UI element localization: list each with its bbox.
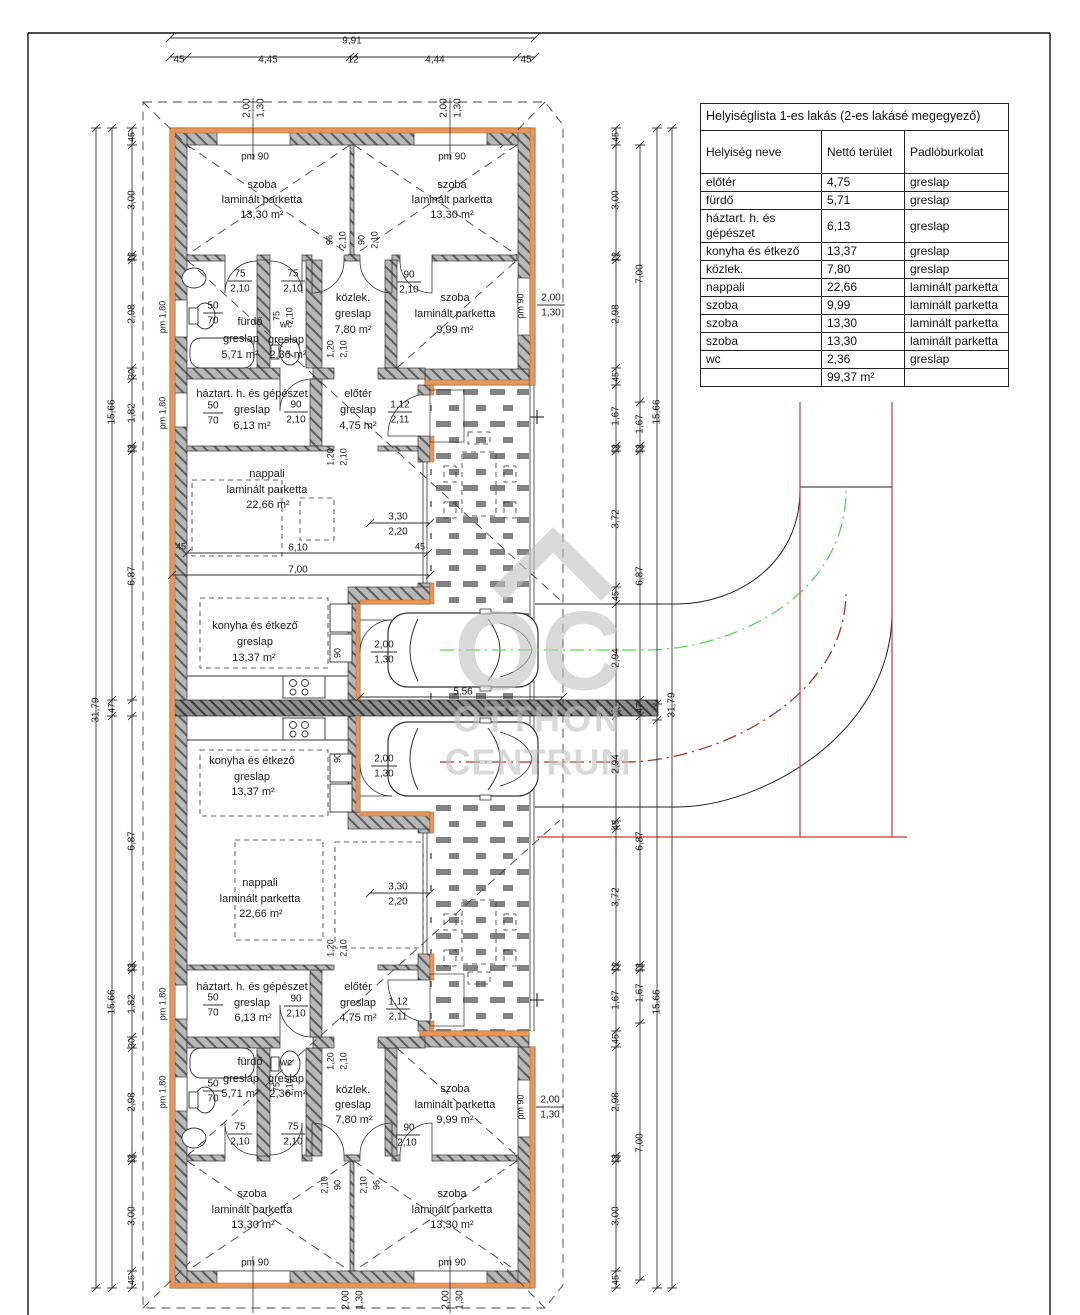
plan-label: 5,71 m²	[221, 1088, 259, 1100]
plan-label: 45	[610, 372, 620, 382]
plan-label: 2,10	[286, 415, 306, 426]
plan-label: 2,10	[230, 284, 250, 295]
watermark-logo: OC	[454, 589, 622, 714]
table-row: szoba13,30laminált parketta	[701, 315, 1009, 333]
plan-label: 45	[176, 541, 186, 551]
plan-label: 12	[610, 1154, 620, 1164]
table-cell: előtér	[701, 174, 822, 192]
plan-label: 12	[126, 963, 136, 973]
table-row: háztart. h. és gépészet6,13greslap	[701, 210, 1009, 243]
plan-label: 30	[126, 369, 136, 379]
table-row: szoba9,99laminált parketta	[701, 297, 1009, 315]
plan-label: 4,75 m²	[339, 1012, 377, 1024]
plan-label: 7,80 m²	[334, 324, 372, 336]
plan-label: wc	[279, 1058, 292, 1069]
plan-label: közlek.	[336, 1084, 370, 1096]
plan-label: 2,10	[337, 231, 347, 249]
table-row: előtér4,75greslap	[701, 174, 1009, 192]
plan-label: 2,10	[338, 340, 348, 358]
plan-label: 75	[287, 1122, 299, 1133]
plan-label: 3,72	[611, 887, 622, 907]
plan-label: laminált parketta	[212, 1204, 294, 1216]
plan-label: 50	[207, 401, 219, 412]
plan-label: 7,00	[635, 264, 646, 284]
plan-label: pm 1,80	[157, 301, 167, 334]
plan-label: 2,10	[338, 1052, 348, 1070]
table-row: szoba13,30laminált parketta	[701, 333, 1009, 351]
plan-label: 1,30	[540, 1110, 560, 1121]
table-cell: 22,66	[822, 279, 905, 297]
floorplan-page: OC OTTHON CENTRUM 9,91454,45124,44452,00…	[0, 0, 1080, 1315]
plan-label: 2,10	[284, 1078, 294, 1096]
plan-label: pm 90	[515, 1094, 525, 1119]
plan-label: 3,00	[127, 190, 138, 210]
plan-label: 90	[356, 235, 366, 245]
room-table-title: Helyiséglista 1-es lakás (2-es lakásé me…	[701, 104, 1009, 131]
plan-label: nappali	[242, 877, 277, 889]
table-cell	[905, 369, 1009, 387]
plan-label: konyha és étkező	[212, 620, 298, 632]
plan-label: 50	[207, 993, 219, 1004]
plan-label: 12	[347, 55, 359, 66]
table-cell: 4,75	[822, 174, 905, 192]
table-cell: laminált parketta	[905, 297, 1009, 315]
plan-label: 7,80 m²	[335, 1114, 373, 1126]
plan-label: 12	[126, 252, 136, 262]
plan-label: 1,12	[390, 400, 410, 411]
plan-label: 2,20	[388, 897, 408, 908]
plan-label: fürdő	[237, 316, 262, 328]
plan-label: 13,30 m²	[231, 1219, 275, 1231]
plan-label: 90	[332, 648, 342, 658]
plan-label: 2,10	[397, 1138, 417, 1149]
plan-label: 2,10	[369, 231, 379, 249]
table-cell: 99,37 m²	[822, 369, 905, 387]
plan-label: 5,71 m²	[221, 349, 259, 361]
plan-label: 1,20	[325, 1052, 335, 1070]
plan-label: 13,37 m²	[231, 786, 275, 798]
plan-label: 3,30	[388, 512, 408, 523]
plan-label: greslap	[223, 333, 259, 345]
table-cell: laminált parketta	[905, 333, 1009, 351]
plan-label: 12	[126, 1154, 136, 1164]
plan-label: 31,79	[667, 692, 678, 717]
table-row: fürdő5,71greslap	[701, 192, 1009, 210]
plan-label: szoba	[437, 1188, 467, 1200]
plan-label: 45	[610, 820, 620, 830]
plan-label: 70	[207, 1094, 219, 1105]
plan-label: 12	[634, 963, 644, 973]
plan-label: 7,00	[635, 1133, 646, 1153]
plan-label: 45	[610, 132, 620, 142]
plan-label: 22,66 m²	[239, 908, 283, 920]
room-table-col-area: Nettó terület	[822, 131, 905, 174]
plan-label: 2,94	[611, 754, 622, 774]
plan-label: 90	[403, 1123, 415, 1134]
plan-label: greslap	[223, 1073, 259, 1085]
plan-label: 2,10	[338, 939, 348, 957]
plan-label: 45	[415, 541, 425, 551]
plan-label: 1,30	[541, 308, 561, 319]
table-cell: fürdő	[701, 192, 822, 210]
plan-label: szoba	[237, 1188, 267, 1200]
plan-label: 2,10	[283, 284, 303, 295]
plan-label: 1,20	[325, 340, 335, 358]
plan-label: 2,00	[374, 754, 394, 765]
plan-label: 2,98	[127, 304, 138, 324]
table-cell: laminált parketta	[905, 279, 1009, 297]
plan-label: 45	[126, 132, 136, 142]
plan-label: 12	[634, 444, 644, 454]
plan-label: 2,00	[441, 1290, 452, 1310]
plan-label: 12	[610, 962, 620, 972]
plan-label: 45	[610, 1034, 620, 1044]
plan-label: 45	[126, 1275, 136, 1285]
plan-label: 1,82	[127, 403, 138, 423]
plan-label: 1,30	[256, 98, 267, 118]
plan-label: greslap	[237, 636, 273, 648]
plan-label: 31,79	[91, 697, 102, 722]
table-cell: konyha és étkező	[701, 243, 822, 261]
plan-label: greslap	[340, 404, 376, 416]
table-cell: greslap	[905, 210, 1009, 243]
plan-label: 6,87	[635, 566, 646, 586]
plan-label: szoba	[440, 1083, 470, 1095]
plan-label: 13,37 m²	[232, 652, 276, 664]
plan-label: 50	[207, 301, 219, 312]
plan-label: 15,66	[652, 399, 663, 424]
plan-label: 1,67	[611, 990, 622, 1010]
plan-label: 2,10	[358, 1176, 368, 1194]
plan-label: 6,10	[288, 543, 308, 554]
plan-label: 12	[610, 444, 620, 454]
table-cell: 13,30	[822, 315, 905, 333]
plan-label: 2,10	[286, 1009, 306, 1020]
plan-label: pm 1,80	[157, 1076, 167, 1109]
plan-label: 5,56	[453, 687, 473, 698]
plan-label: 2,00	[242, 98, 253, 118]
plan-label: 2,00	[540, 1095, 560, 1106]
plan-label: 2,00	[439, 98, 450, 118]
plan-label: 96	[371, 1180, 381, 1190]
plan-label: 2,10	[230, 1137, 250, 1148]
plan-label: 96	[324, 235, 334, 245]
plan-label: szoba	[440, 292, 470, 304]
plan-label: fürdő	[237, 1056, 262, 1068]
plan-label: laminált parketta	[412, 194, 494, 206]
table-cell: szoba	[701, 297, 822, 315]
plan-label: pm 90	[438, 1258, 466, 1269]
watermark-line1: OTTHON	[453, 699, 623, 740]
plan-label: 70	[207, 1008, 219, 1019]
plan-label: 15,66	[652, 989, 663, 1014]
table-cell: greslap	[905, 261, 1009, 279]
table-row: wc2,36greslap	[701, 351, 1009, 369]
plan-label: 90	[290, 994, 302, 1005]
plan-label: laminált parketta	[220, 893, 302, 905]
plan-label: greslap	[234, 997, 270, 1009]
table-cell: 6,13	[822, 210, 905, 243]
plan-label: háztart. h. és gépészet	[196, 388, 307, 400]
plan-label: 2,00	[341, 1290, 352, 1310]
plan-label: 1,30	[374, 769, 394, 780]
room-list-table: Helyiséglista 1-es lakás (2-es lakásé me…	[700, 103, 1009, 387]
plan-label: pm 1,80	[157, 988, 167, 1021]
plan-label: 9,99 m²	[436, 324, 474, 336]
plan-label: 1,82	[127, 994, 138, 1014]
plan-label: 4,44	[425, 55, 445, 66]
table-cell: 9,99	[822, 297, 905, 315]
plan-label: 3,72	[611, 509, 622, 529]
plan-label: 3,00	[127, 1206, 138, 1226]
plan-label: 2,10	[319, 1176, 329, 1194]
plan-label: 1,67	[635, 414, 646, 434]
plan-label: 2,98	[611, 304, 622, 324]
plan-label: szoba	[247, 179, 277, 191]
plan-label: 15,66	[107, 989, 118, 1014]
plan-label: 13,30 m²	[430, 1219, 474, 1231]
plan-label: 75	[234, 1122, 246, 1133]
table-cell: szoba	[701, 333, 822, 351]
table-cell: közlek.	[701, 261, 822, 279]
plan-label: 4,45	[258, 55, 278, 66]
plan-label: 2,20	[388, 527, 408, 538]
plan-label: 90	[332, 753, 342, 763]
plan-label: 70	[207, 416, 219, 427]
plan-label: 6,13 m²	[233, 420, 271, 432]
plan-label: 47	[106, 703, 116, 713]
plan-label: 13,30 m²	[240, 209, 284, 221]
watermark-line2: CENTRUM	[445, 742, 632, 783]
plan-label: 2,98	[611, 1092, 622, 1112]
table-row: konyha és étkező13,37greslap	[701, 243, 1009, 261]
plan-label: 2,10	[338, 448, 348, 466]
table-cell: háztart. h. és gépészet	[701, 210, 822, 243]
plan-label: pm 90	[241, 152, 269, 163]
plan-label: 2,98	[127, 1092, 138, 1112]
table-cell	[701, 369, 822, 387]
plan-label: 47	[634, 703, 644, 713]
table-cell: greslap	[905, 174, 1009, 192]
plan-label: nappali	[249, 468, 284, 480]
plan-label: 45	[173, 55, 185, 66]
plan-label: laminált parketta	[415, 1099, 497, 1111]
plan-label: wc	[279, 320, 292, 331]
plan-label: 70	[207, 316, 219, 327]
plan-label: 3,00	[611, 1206, 622, 1226]
plan-label: előtér	[344, 981, 372, 993]
plan-label: greslap	[234, 404, 270, 416]
plan-label: pm 90	[515, 293, 525, 318]
plan-label: laminált parketta	[415, 308, 497, 320]
plan-label: közlek.	[336, 292, 370, 304]
plan-label: 45	[610, 591, 620, 601]
plan-label: greslap	[268, 334, 304, 346]
plan-label: greslap	[335, 1099, 371, 1111]
table-cell: nappali	[701, 279, 822, 297]
table-cell: 7,80	[822, 261, 905, 279]
plan-label: 12	[126, 444, 136, 454]
plan-label: 22,66 m²	[246, 499, 290, 511]
room-table-col-floor: Padlóburkolat	[905, 131, 1009, 174]
plan-label: 3,30	[388, 882, 408, 893]
plan-label: 1,30	[355, 1290, 366, 1310]
table-cell: 2,36	[822, 351, 905, 369]
plan-label: 2,11	[389, 1012, 408, 1023]
plan-label: 6,87	[127, 566, 138, 586]
table-cell: szoba	[701, 315, 822, 333]
plan-label: 1,30	[374, 655, 394, 666]
plan-label: 75	[287, 269, 299, 280]
plan-label: 90	[290, 400, 302, 411]
table-cell: greslap	[905, 351, 1009, 369]
plan-label: greslap	[234, 771, 270, 783]
table-cell: laminált parketta	[905, 315, 1009, 333]
plan-label: 2,00	[541, 293, 561, 304]
plan-label: 1,20	[325, 448, 335, 466]
plan-label: 3,00	[611, 190, 622, 210]
table-cell: greslap	[905, 243, 1009, 261]
plan-label: szoba	[437, 179, 467, 191]
table-row: közlek.7,80greslap	[701, 261, 1009, 279]
table-row: 99,37 m²	[701, 369, 1009, 387]
plan-label: 9,91	[342, 36, 362, 47]
room-table-body: előtér4,75greslapfürdő5,71greslapháztart…	[701, 174, 1009, 387]
plan-label: 6,87	[127, 831, 138, 851]
table-cell: wc	[701, 351, 822, 369]
plan-label: 6,87	[635, 831, 646, 851]
plan-label: 1,67	[635, 983, 646, 1003]
plan-label: 45	[610, 1275, 620, 1285]
plan-label: 50	[207, 1079, 219, 1090]
plan-label: 13,30 m²	[430, 209, 474, 221]
plan-label: 90	[332, 1180, 342, 1190]
table-cell: 5,71	[822, 192, 905, 210]
plan-label: 90	[403, 270, 415, 281]
table-cell: greslap	[905, 192, 1009, 210]
plan-label: 1,30	[455, 1290, 466, 1310]
room-table-col-name: Helyiség neve	[701, 131, 822, 174]
plan-label: laminált parketta	[412, 1204, 494, 1216]
plan-label: 2,10	[283, 1137, 303, 1148]
plan-label: laminált parketta	[227, 484, 309, 496]
plan-label: 2,36 m²	[269, 349, 307, 361]
plan-label: 15,66	[107, 399, 118, 424]
plan-label: 9,99 m²	[436, 1114, 474, 1126]
plan-label: 1,12	[388, 997, 408, 1008]
plan-label: pm 1,80	[157, 397, 167, 430]
plan-label: előtér	[344, 388, 372, 400]
plan-label: 75	[271, 1082, 281, 1092]
plan-label: 30	[126, 1038, 136, 1048]
plan-label: 7,00	[288, 565, 308, 576]
plan-label: pm 90	[241, 1258, 269, 1269]
plan-label: greslap	[340, 997, 376, 1009]
plan-label: 1,20	[325, 939, 335, 957]
plan-label: 6,13 m²	[234, 1012, 272, 1024]
plan-label: 1,30	[453, 98, 464, 118]
plan-label: 45	[520, 55, 532, 66]
plan-label: 2,11	[391, 415, 410, 426]
plan-label: háztart. h. és gépészet	[196, 981, 307, 993]
table-row: nappali22,66laminált parketta	[701, 279, 1009, 297]
plan-label: greslap	[335, 308, 371, 320]
table-cell: 13,37	[822, 243, 905, 261]
plan-label: konyha és étkező	[209, 755, 295, 767]
plan-label: laminált parketta	[222, 194, 304, 206]
plan-label: 75	[234, 269, 246, 280]
plan-label: 4,75 m²	[339, 420, 377, 432]
plan-label: pm 90	[438, 152, 466, 163]
plan-label: 2,00	[374, 640, 394, 651]
plan-label: 2,10	[399, 285, 419, 296]
plan-label: 12	[610, 252, 620, 262]
plan-label: 2,94	[611, 648, 622, 668]
plan-label: 1,67	[611, 406, 622, 426]
table-cell: 13,30	[822, 333, 905, 351]
